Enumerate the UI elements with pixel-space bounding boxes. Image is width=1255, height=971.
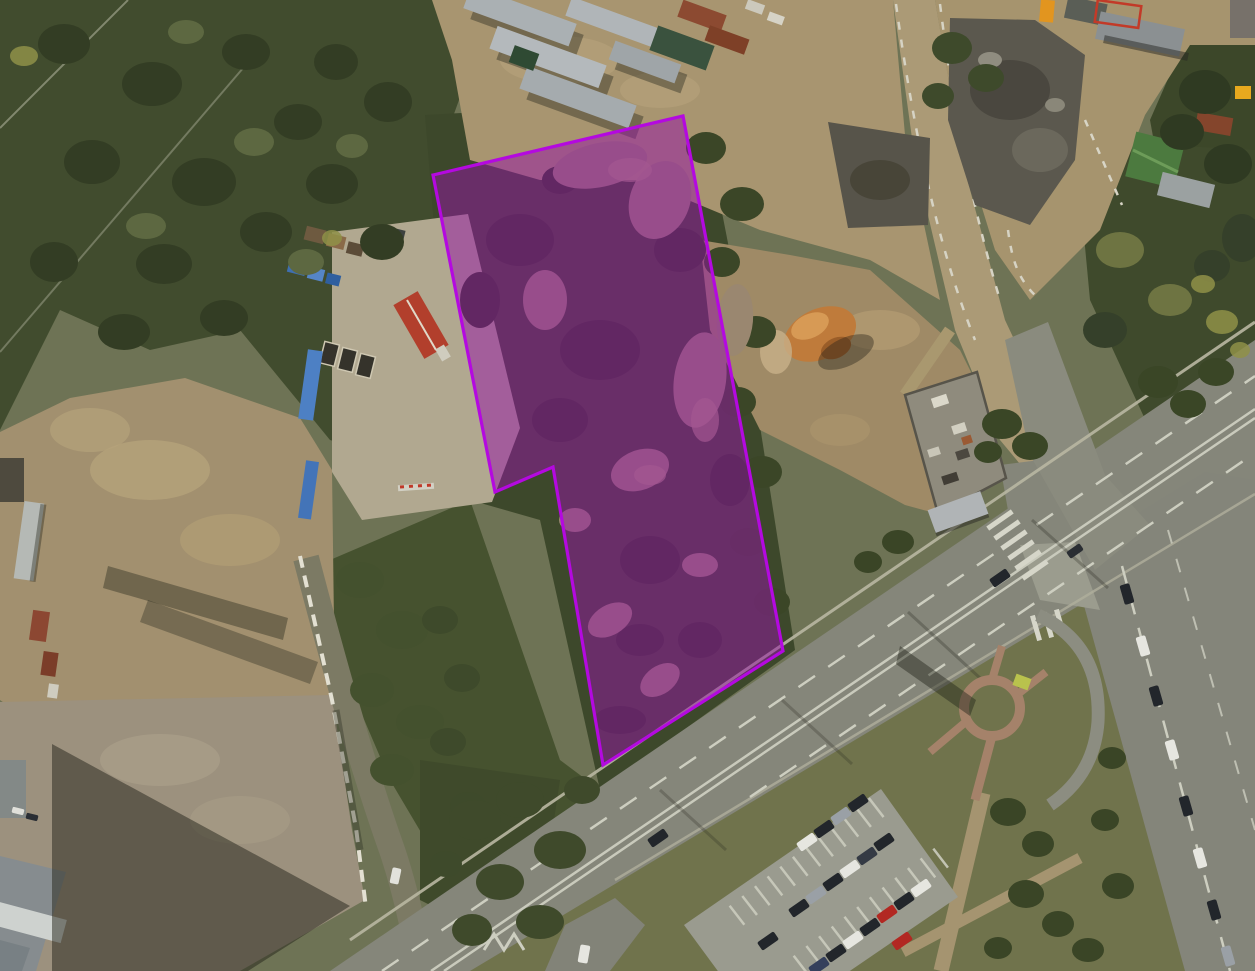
tree bbox=[516, 905, 564, 939]
park-tree bbox=[1098, 747, 1126, 769]
tree bbox=[982, 409, 1022, 439]
tree bbox=[172, 158, 236, 206]
bush bbox=[430, 851, 462, 877]
satellite-map-view bbox=[0, 0, 1255, 971]
tree bbox=[30, 242, 78, 282]
bush bbox=[336, 562, 384, 598]
autumn-tree bbox=[322, 230, 342, 246]
tree bbox=[240, 212, 292, 252]
tree-light bbox=[1096, 232, 1144, 268]
tree bbox=[1160, 114, 1204, 150]
tree bbox=[974, 441, 1002, 463]
tree bbox=[306, 164, 358, 204]
tree bbox=[1083, 312, 1127, 348]
tree bbox=[1198, 358, 1234, 386]
bush bbox=[430, 728, 466, 756]
park-tree bbox=[1091, 809, 1119, 831]
tree bbox=[1138, 366, 1178, 398]
park-tree bbox=[1102, 873, 1134, 899]
bush bbox=[376, 611, 428, 649]
rubble-texture bbox=[1012, 128, 1068, 172]
corner-structure bbox=[1230, 0, 1255, 38]
autumn-tree bbox=[10, 46, 38, 66]
bush bbox=[350, 673, 394, 707]
park-tree bbox=[1042, 911, 1074, 937]
white-structure bbox=[47, 683, 59, 698]
autumn-tree bbox=[1191, 275, 1215, 293]
orange-machine bbox=[1039, 0, 1055, 23]
tree bbox=[1170, 390, 1206, 418]
orange-machine bbox=[1235, 86, 1251, 99]
tree bbox=[122, 62, 182, 106]
tree-light bbox=[1148, 284, 1192, 316]
tree bbox=[98, 314, 150, 350]
tree bbox=[882, 530, 914, 554]
rubble-texture bbox=[850, 160, 910, 200]
tree-light bbox=[168, 20, 204, 44]
tree bbox=[64, 140, 120, 184]
bush bbox=[370, 754, 414, 786]
tree bbox=[932, 32, 972, 64]
dark-structure bbox=[0, 458, 24, 502]
tree bbox=[274, 104, 322, 140]
tree bbox=[496, 782, 544, 818]
tree bbox=[1179, 70, 1231, 114]
tree bbox=[1204, 144, 1252, 184]
rubble-highlight bbox=[1045, 98, 1065, 112]
tree bbox=[136, 244, 192, 284]
autumn-tree bbox=[1206, 310, 1238, 334]
aerial-canvas bbox=[0, 0, 1255, 971]
tree bbox=[360, 224, 404, 260]
tree bbox=[222, 34, 270, 70]
tree-light bbox=[336, 134, 368, 158]
park-tree bbox=[1022, 831, 1054, 857]
tree bbox=[534, 831, 586, 869]
tree bbox=[564, 776, 600, 804]
park-tree bbox=[1072, 938, 1104, 962]
tree bbox=[314, 44, 358, 80]
tree-light bbox=[234, 128, 274, 156]
tree-light bbox=[126, 213, 166, 239]
autumn-tree bbox=[1230, 342, 1250, 358]
park-tree bbox=[990, 798, 1026, 826]
tree-light bbox=[288, 249, 324, 275]
tree bbox=[854, 551, 882, 573]
tree bbox=[364, 82, 412, 122]
park-tree bbox=[1008, 880, 1044, 908]
tree bbox=[200, 300, 248, 336]
tree bbox=[476, 864, 524, 900]
park-tree bbox=[984, 937, 1012, 959]
bush bbox=[444, 664, 480, 692]
tree bbox=[449, 800, 501, 840]
bush bbox=[422, 606, 458, 634]
tree bbox=[968, 64, 1004, 92]
tree bbox=[1012, 432, 1048, 460]
tree bbox=[452, 914, 492, 946]
tree bbox=[720, 187, 764, 221]
tree bbox=[38, 24, 90, 64]
tree bbox=[922, 83, 954, 109]
